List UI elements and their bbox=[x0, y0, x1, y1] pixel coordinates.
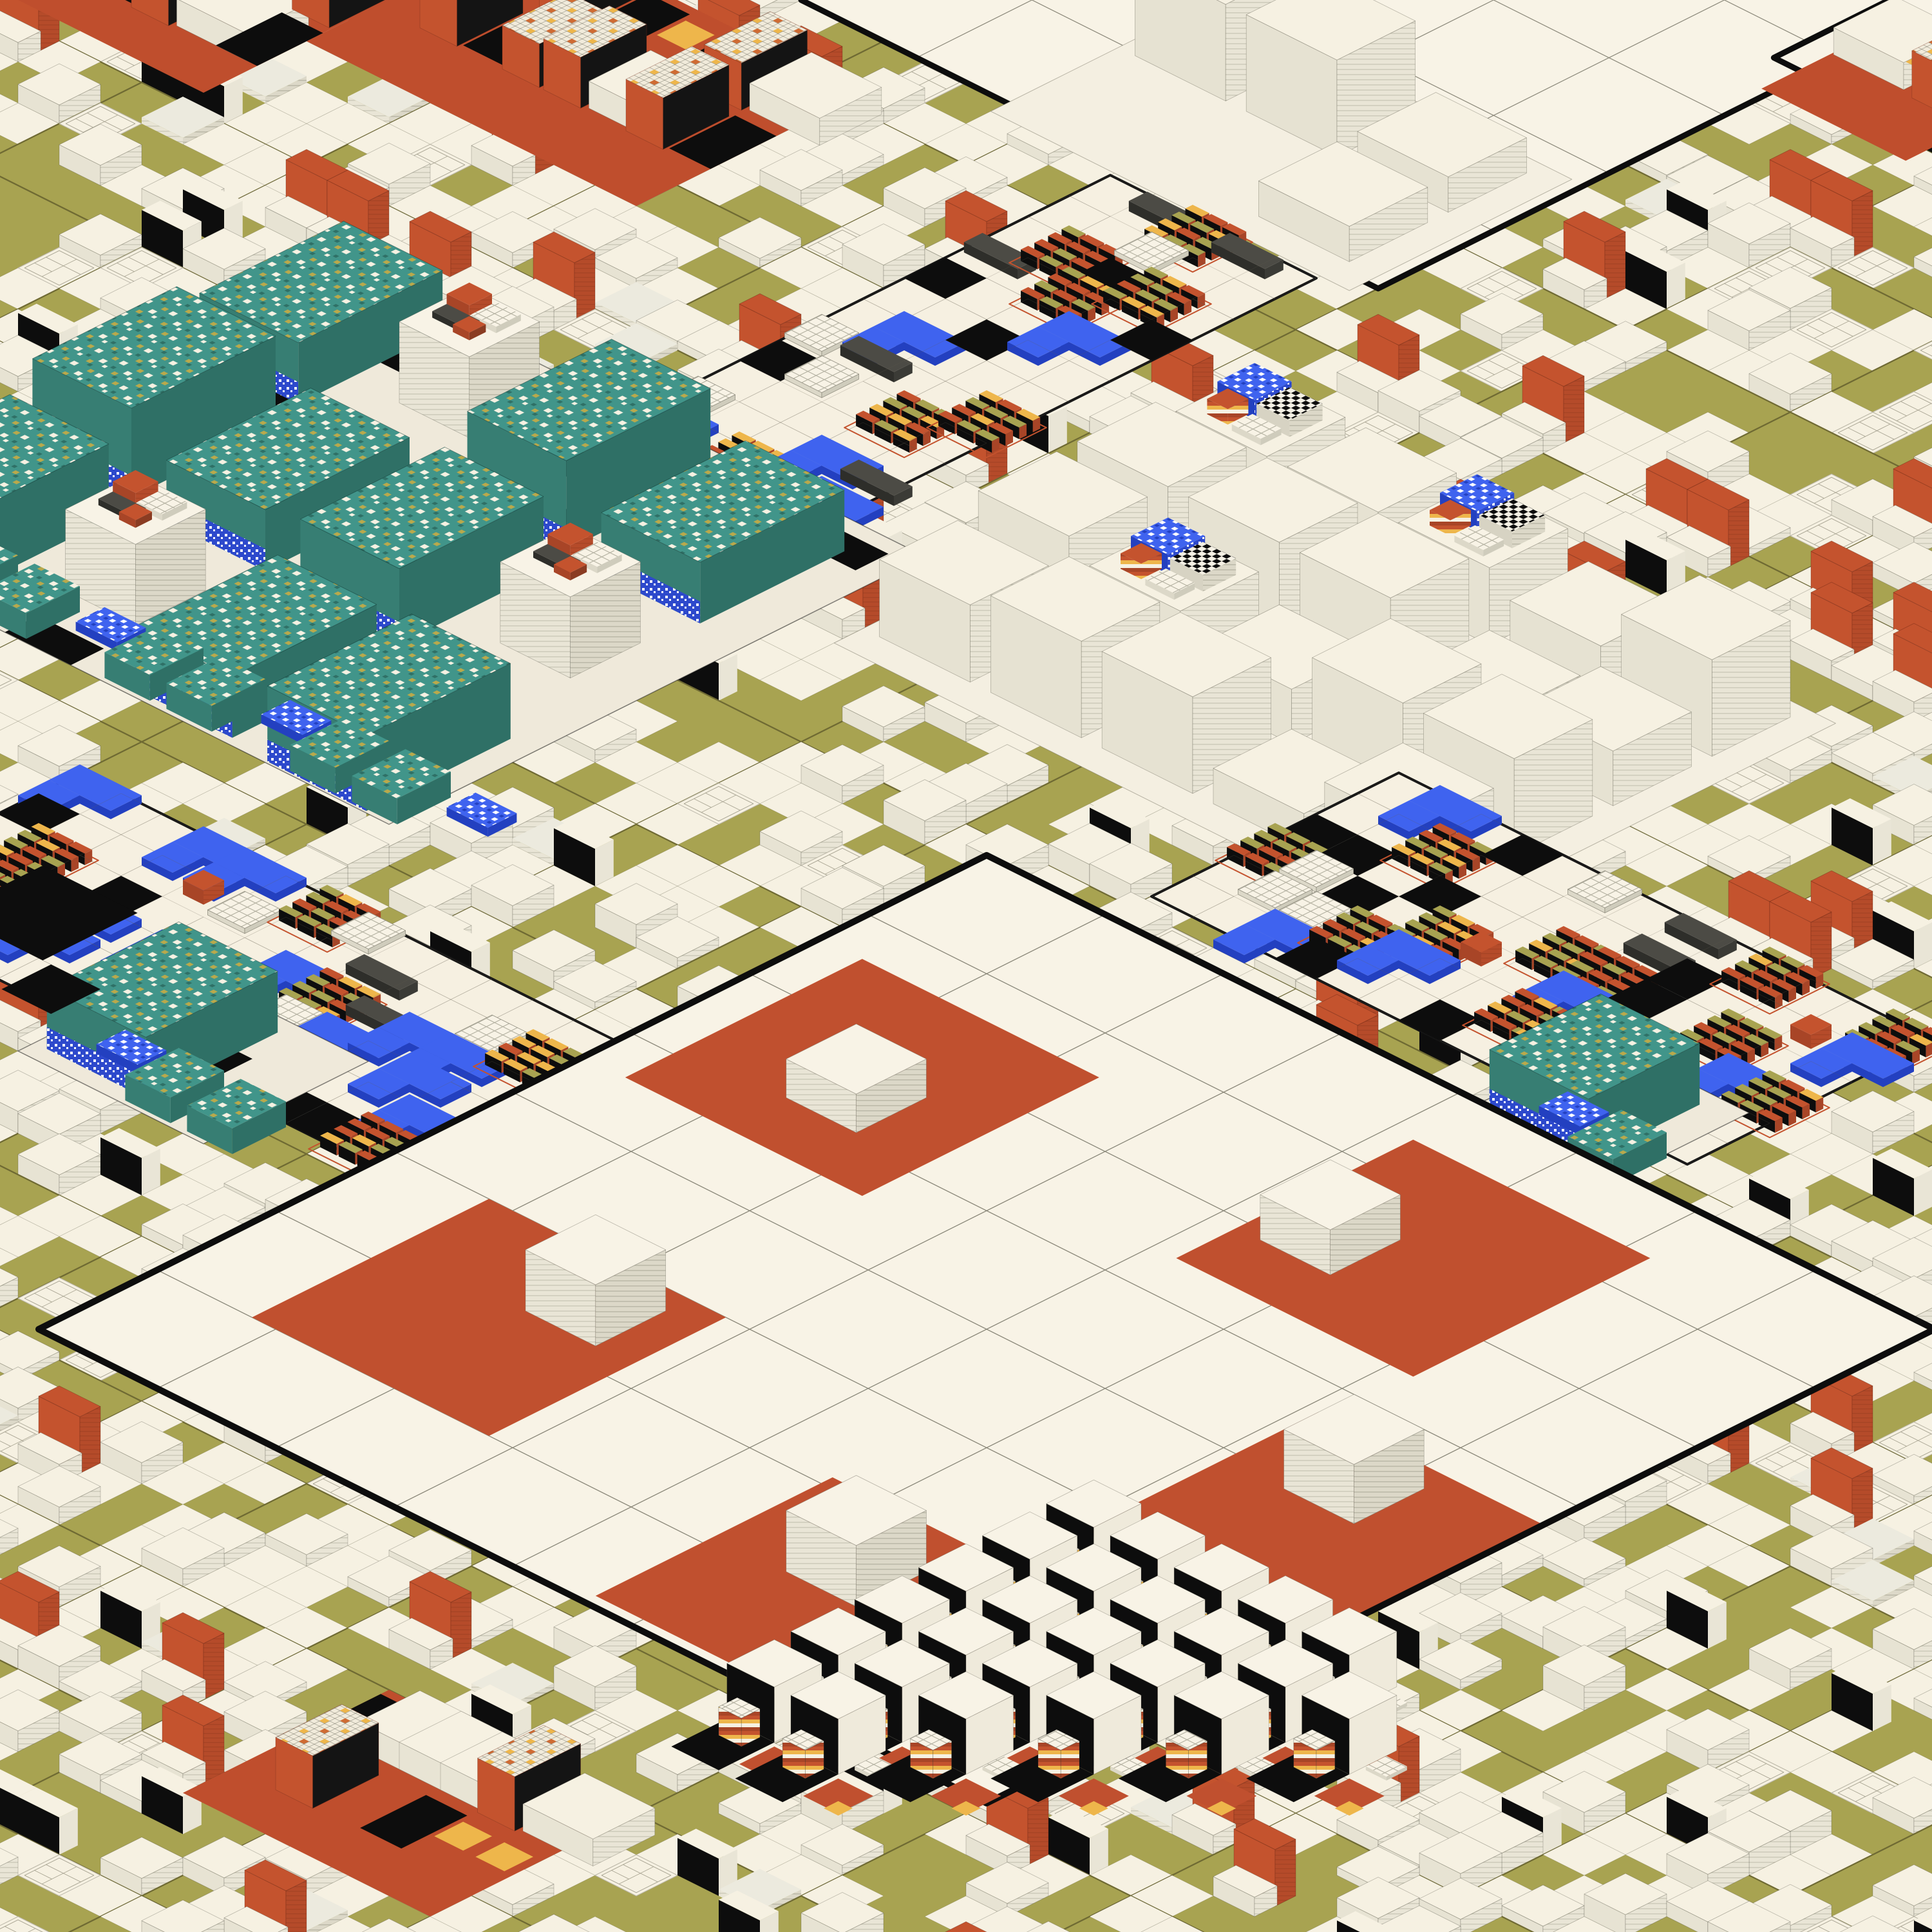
artwork-viewport bbox=[0, 0, 1932, 1932]
artwork-canvas bbox=[0, 0, 1932, 1932]
